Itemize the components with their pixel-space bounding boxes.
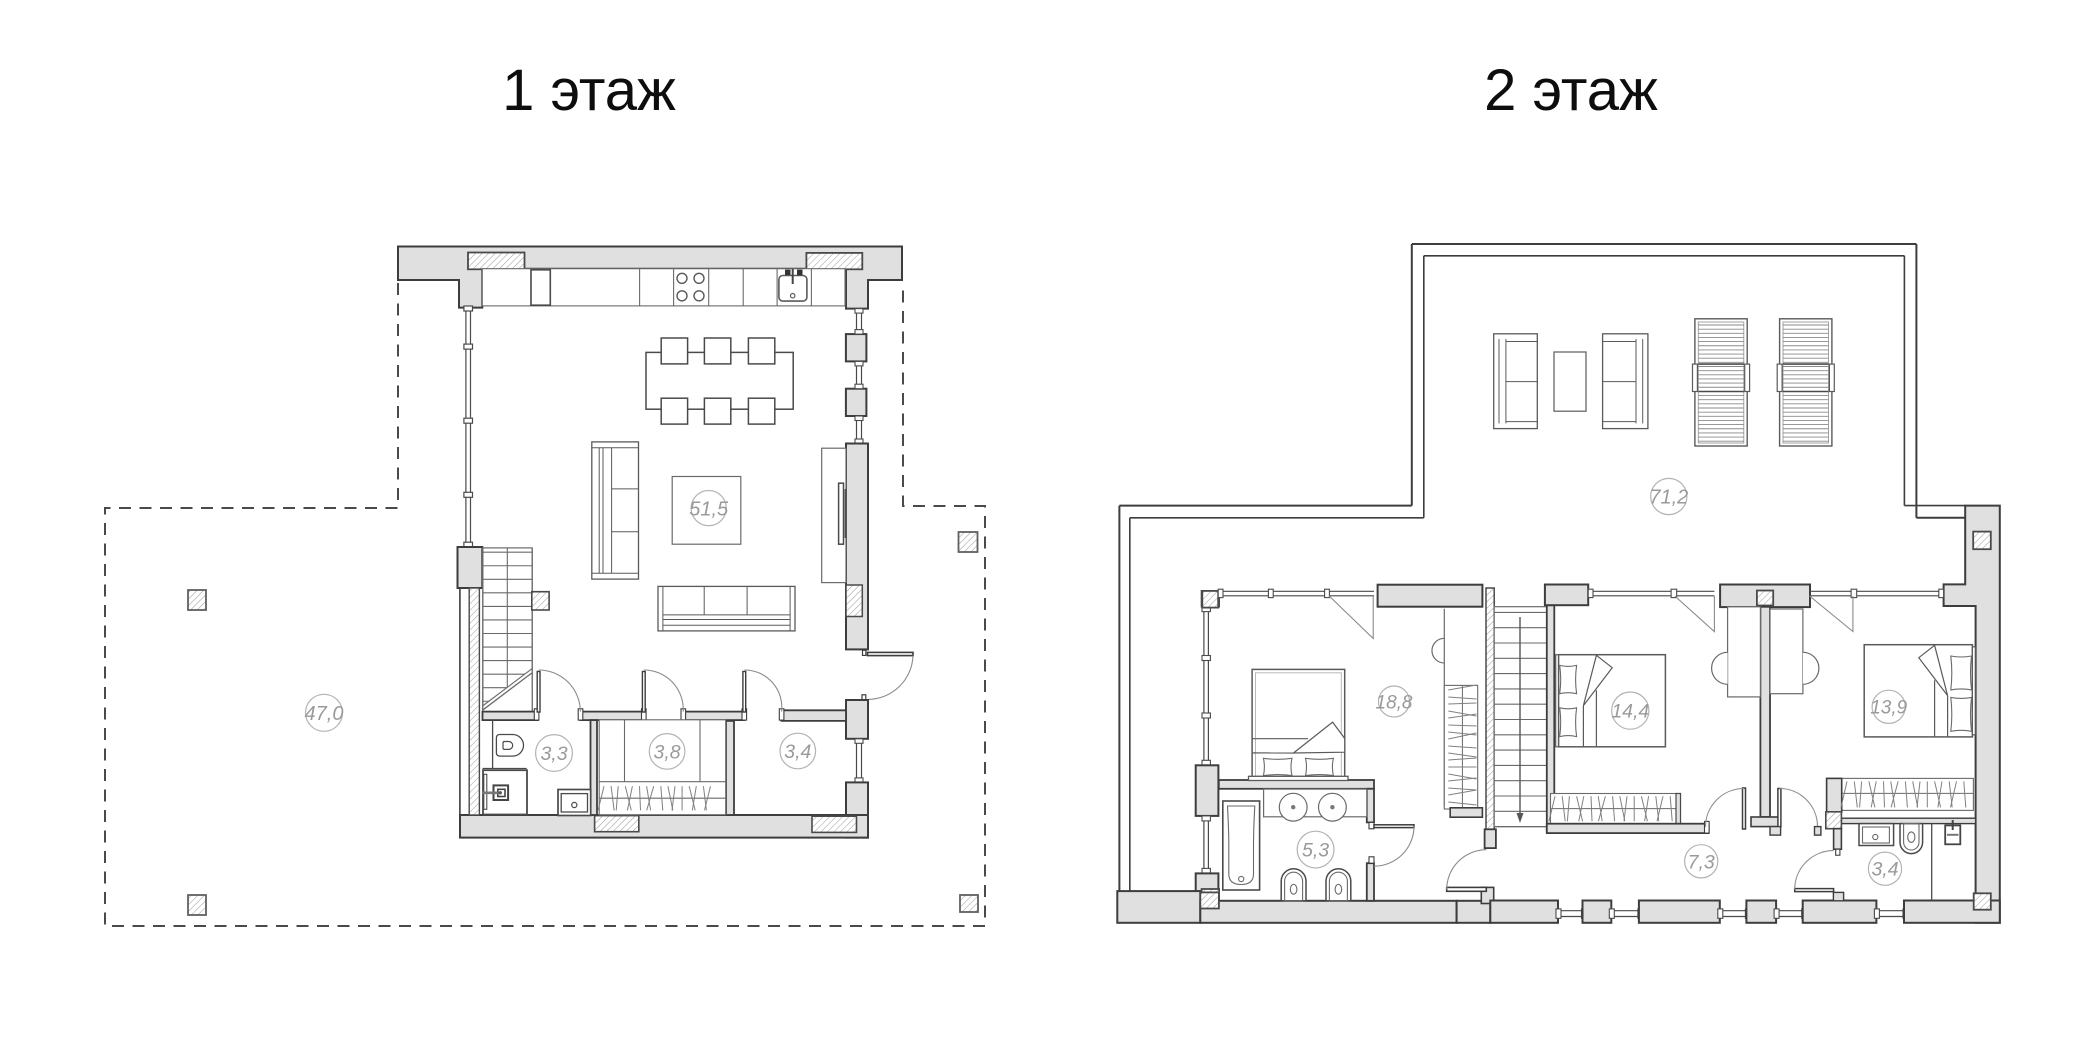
svg-text:5,3: 5,3 [1302, 840, 1329, 862]
svg-text:13,9: 13,9 [1870, 698, 1907, 719]
svg-text:3,4: 3,4 [784, 741, 811, 763]
svg-text:14,4: 14,4 [1611, 701, 1649, 723]
svg-text:3,3: 3,3 [540, 743, 567, 765]
svg-text:7,3: 7,3 [1688, 851, 1715, 873]
svg-text:3,4: 3,4 [1871, 859, 1898, 881]
svg-text:47,0: 47,0 [305, 703, 344, 725]
svg-text:3,8: 3,8 [654, 741, 681, 763]
svg-text:1 этаж: 1 этаж [502, 58, 676, 123]
svg-text:51,5: 51,5 [689, 498, 729, 520]
svg-text:18,8: 18,8 [1376, 692, 1413, 713]
svg-text:71,2: 71,2 [1649, 487, 1688, 509]
svg-text:2 этаж: 2 этаж [1484, 58, 1658, 123]
